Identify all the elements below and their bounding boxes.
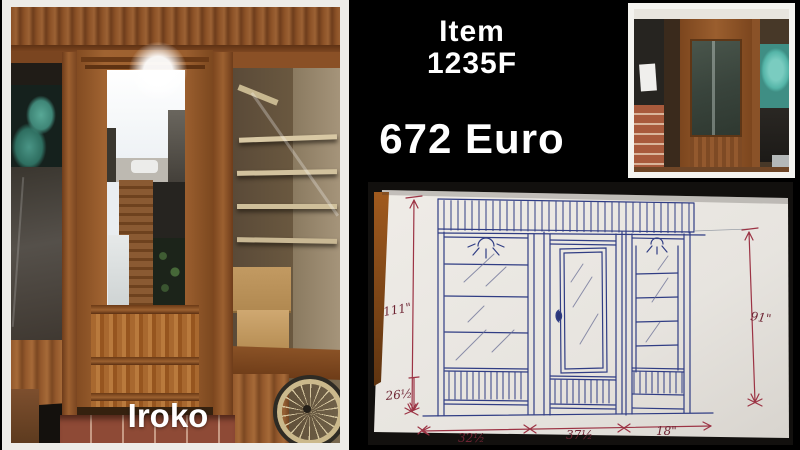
left-frame-post bbox=[62, 52, 77, 443]
price-text: 672 Euro bbox=[352, 115, 592, 163]
ceiling-strip bbox=[634, 9, 789, 19]
teal-bag bbox=[760, 44, 789, 108]
tr-door-glass bbox=[690, 39, 742, 137]
wood-type-caption: Iroko bbox=[103, 397, 233, 435]
car-silhouette bbox=[131, 160, 158, 173]
main-photo-content: Iroko bbox=[11, 7, 340, 443]
hand-sketch-photo: 111" 26½ 32½ 37½ 18" 91" bbox=[368, 182, 793, 445]
secondary-photo-content bbox=[634, 9, 789, 172]
product-collage: Iroko Item 1235F 672 Euro bbox=[0, 0, 800, 450]
brown-table-corner bbox=[11, 389, 39, 443]
dim-width-right: 18" bbox=[656, 424, 677, 438]
brick-tile-wall bbox=[634, 105, 666, 172]
door-lower-panel bbox=[91, 305, 199, 407]
teal-bags-in-case bbox=[11, 85, 62, 169]
glass-interior-shadow bbox=[153, 182, 185, 242]
dark-bags bbox=[760, 108, 789, 162]
dark-cabinet bbox=[664, 19, 680, 171]
plant-in-doorway bbox=[153, 238, 185, 305]
right-frame-post bbox=[213, 52, 233, 443]
price-badge: Item 1235F 672 Euro bbox=[352, 16, 592, 163]
white-paper-sign bbox=[639, 63, 657, 91]
item-code: 1235F bbox=[352, 48, 592, 80]
door-glass bbox=[107, 70, 185, 305]
sketch-paper bbox=[374, 190, 789, 438]
left-case-top-rail bbox=[11, 52, 62, 63]
item-label: Item bbox=[352, 16, 592, 48]
glass-dark-left bbox=[107, 128, 116, 182]
bicycle-wheel bbox=[273, 375, 340, 443]
cardboard-box bbox=[233, 267, 291, 313]
shelf bbox=[237, 237, 337, 244]
shelf bbox=[237, 204, 337, 209]
tr-door-lower-slats bbox=[690, 137, 742, 167]
door-rail bbox=[91, 305, 199, 314]
right-case-top-rail bbox=[233, 52, 340, 68]
dim-width-center: 37½ bbox=[566, 428, 593, 442]
glass-streak bbox=[712, 41, 715, 135]
dim-base-height: 26½ bbox=[384, 386, 413, 403]
wheel-hub bbox=[303, 405, 311, 413]
dim-width-left: 32½ bbox=[458, 431, 485, 445]
door-rail bbox=[91, 357, 199, 365]
main-product-photo: Iroko bbox=[2, 0, 349, 450]
door-elevation-sketch: 111" 26½ 32½ 37½ 18" 91" bbox=[368, 182, 793, 445]
glass-dark-right bbox=[168, 110, 185, 182]
white-appliance bbox=[108, 235, 129, 305]
dim-height-right: 91" bbox=[750, 309, 773, 326]
tr-floor bbox=[634, 167, 789, 172]
tr-right-post bbox=[752, 19, 760, 171]
lens-flare bbox=[129, 42, 187, 100]
right-case bbox=[233, 52, 340, 443]
secondary-product-photo bbox=[628, 3, 795, 178]
